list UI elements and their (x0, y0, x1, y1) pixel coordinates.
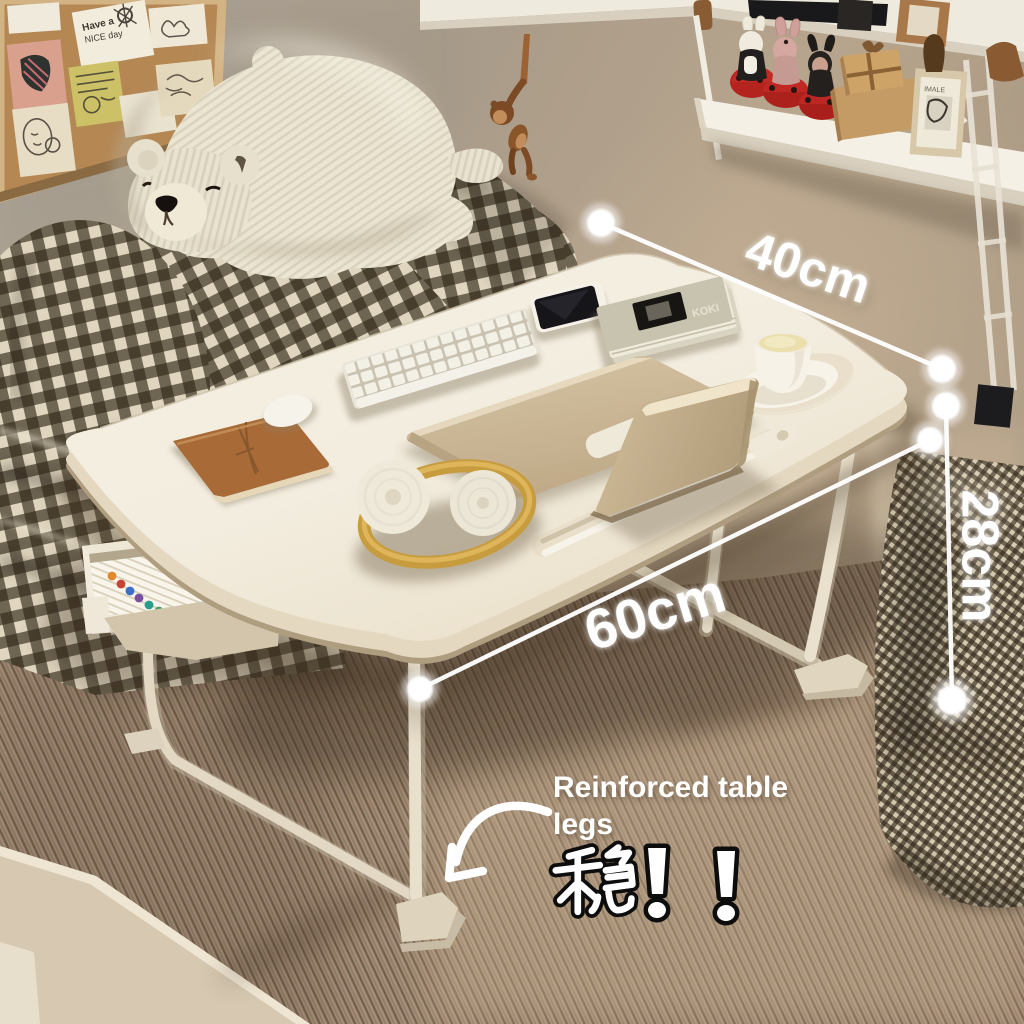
svg-text:IMALE: IMALE (924, 86, 946, 94)
svg-text:legs: legs (553, 808, 613, 841)
svg-text:28cm: 28cm (950, 490, 1008, 623)
svg-text:Reinforced table: Reinforced table (553, 771, 788, 804)
